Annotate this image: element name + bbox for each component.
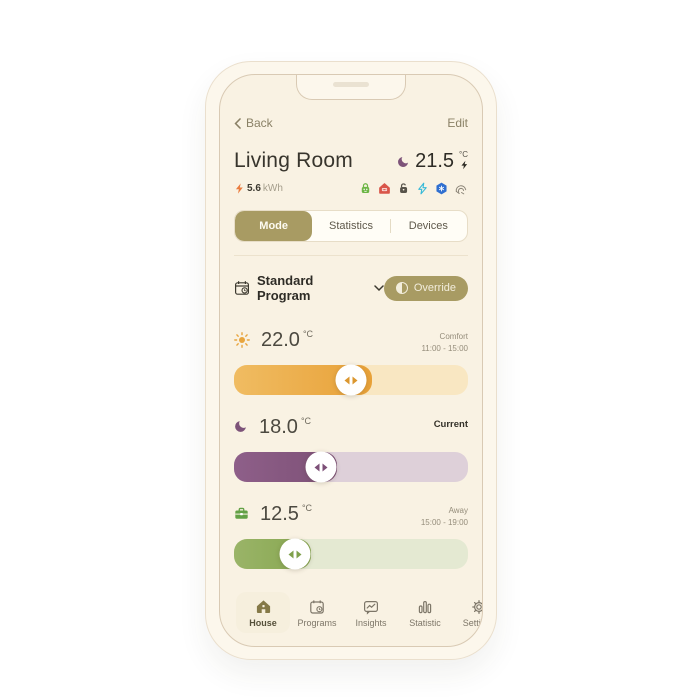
back-button[interactable]: Back — [234, 116, 273, 130]
temperature-unit: °C — [459, 150, 468, 159]
program-label: Standard Program — [257, 273, 367, 303]
schedule-row-away: 12.5 °C Away 15:00 - 19:00 — [234, 502, 468, 569]
status-icon-row — [359, 182, 468, 195]
red-home-icon — [378, 182, 391, 195]
period-time: 11:00 - 15:00 — [421, 343, 468, 355]
schedule-row-current: 18.0 °C Current — [234, 415, 468, 482]
edit-button[interactable]: Edit — [447, 116, 468, 130]
moon-icon — [397, 155, 410, 168]
setpoint-temperature: 18.0 — [259, 415, 298, 439]
program-row: Standard Program Override — [234, 273, 468, 303]
arrow-left-icon — [314, 463, 319, 471]
tab-statistics[interactable]: Statistics — [312, 211, 389, 241]
back-label: Back — [246, 116, 273, 130]
bolt-icon — [460, 160, 468, 170]
sun-icon — [234, 332, 250, 348]
temperature-slider[interactable] — [234, 452, 468, 482]
phone-screen: Back Edit Living Room 21.5 °C — [219, 74, 483, 647]
schedule-row-comfort: 22.0 °C Comfort 11:00 - 15:00 — [234, 328, 468, 395]
blue-hexagon-icon — [435, 182, 448, 195]
period-label: Away — [421, 505, 468, 517]
bar-chart-icon — [417, 599, 433, 615]
app-content: Back Edit Living Room 21.5 °C — [234, 75, 468, 646]
temperature-value: 21.5 — [415, 150, 454, 173]
heating-coil-icon — [454, 182, 468, 195]
slider-thumb[interactable] — [305, 452, 336, 483]
green-lock-icon — [359, 182, 372, 195]
current-temperature: 21.5 °C — [397, 150, 468, 173]
temperature-unit: °C — [303, 329, 313, 339]
temperature-unit: °C — [302, 503, 312, 513]
tab-house[interactable]: House — [236, 592, 290, 633]
energy-unit: kWh — [263, 183, 283, 194]
arrow-left-icon — [345, 376, 350, 384]
tab-label: House — [249, 618, 277, 628]
energy-row: 5.6 kWh — [234, 182, 468, 195]
moon-icon — [234, 419, 248, 433]
temperature-slider[interactable] — [234, 539, 468, 569]
tab-label: Statistic — [409, 618, 441, 628]
desktop-background: Back Edit Living Room 21.5 °C — [0, 0, 700, 700]
tab-label: Insights — [355, 618, 386, 628]
arrow-left-icon — [288, 550, 293, 558]
tab-devices[interactable]: Devices — [390, 211, 467, 241]
tab-statistic[interactable]: Statistic — [398, 592, 452, 633]
override-button[interactable]: Override — [384, 276, 468, 301]
tab-programs[interactable]: Programs — [290, 592, 344, 633]
phone-frame: Back Edit Living Room 21.5 °C — [205, 61, 497, 660]
slider-thumb[interactable] — [336, 365, 367, 396]
arrow-right-icon — [296, 550, 301, 558]
speaker-grille — [333, 82, 369, 87]
tab-settings[interactable]: Settings — [452, 592, 483, 633]
power-bolt-icon — [416, 182, 429, 195]
bolt-icon — [234, 183, 244, 194]
room-title: Living Room — [234, 149, 353, 173]
period-label: Current — [434, 418, 468, 433]
setpoint-temperature: 22.0 — [261, 328, 300, 352]
house-icon — [255, 599, 272, 615]
header: Living Room 21.5 °C — [234, 149, 468, 173]
briefcase-icon — [234, 506, 249, 521]
gray-lock-icon — [397, 182, 410, 195]
phone-notch — [296, 74, 406, 100]
slider-thumb[interactable] — [279, 539, 310, 570]
schedule-list: 22.0 °C Comfort 11:00 - 15:00 — [234, 328, 468, 569]
segmented-control: Mode Statistics Devices — [234, 210, 468, 242]
gear-icon — [471, 599, 483, 615]
tab-mode[interactable]: Mode — [235, 211, 312, 241]
temperature-slider[interactable] — [234, 365, 468, 395]
period-label: Comfort — [421, 331, 468, 343]
calendar-clock-icon — [234, 280, 250, 296]
chevron-down-icon — [374, 284, 384, 292]
program-selector[interactable]: Standard Program — [234, 273, 384, 303]
insights-icon — [363, 599, 379, 615]
period-time: 15:00 - 19:00 — [421, 517, 468, 529]
tab-label: Programs — [297, 618, 336, 628]
arrow-right-icon — [353, 376, 358, 384]
half-circle-icon — [396, 282, 408, 294]
temperature-unit: °C — [301, 416, 311, 426]
bottom-tab-bar: House Programs — [236, 592, 466, 633]
tab-label: Settings — [463, 618, 483, 628]
divider — [234, 255, 468, 256]
energy-value: 5.6 — [247, 183, 261, 194]
override-label: Override — [414, 282, 456, 294]
chevron-left-icon — [234, 118, 242, 129]
nav-bar: Back Edit — [234, 116, 468, 130]
arrow-right-icon — [322, 463, 327, 471]
setpoint-temperature: 12.5 — [260, 502, 299, 526]
calendar-clock-icon — [309, 599, 325, 615]
tab-insights[interactable]: Insights — [344, 592, 398, 633]
